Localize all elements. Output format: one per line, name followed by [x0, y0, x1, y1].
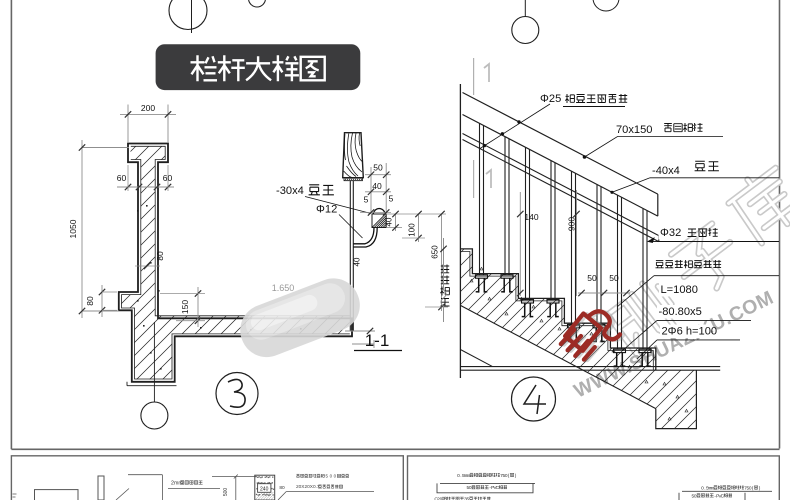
svg-text:-40x4: -40x4: [652, 165, 680, 177]
svg-text:m: m: [466, 474, 470, 479]
svg-text:0: 0: [469, 485, 472, 491]
svg-text:40: 40: [353, 257, 362, 266]
svg-text:40: 40: [372, 181, 382, 191]
svg-text:-80.80x5: -80.80x5: [659, 306, 702, 318]
svg-text:240: 240: [260, 487, 269, 493]
svg-text:50: 50: [373, 163, 383, 173]
svg-text:20X20X0.7: 20X20X0.7: [296, 484, 320, 490]
svg-text:5: 5: [466, 497, 469, 500]
svg-text:L=1080: L=1080: [661, 284, 698, 296]
svg-text:70x150: 70x150: [616, 124, 653, 136]
svg-text:140: 140: [524, 212, 538, 222]
svg-text:80: 80: [279, 485, 285, 491]
svg-text:50: 50: [587, 273, 597, 283]
svg-text:1050: 1050: [68, 219, 78, 238]
svg-text:2Φ6 h=100: 2Φ6 h=100: [662, 326, 718, 338]
svg-text:500: 500: [223, 488, 229, 497]
svg-text:1.650: 1.650: [272, 283, 295, 293]
svg-text:100: 100: [408, 223, 417, 237]
svg-text:900: 900: [567, 217, 577, 231]
svg-text:-30x4: -30x4: [276, 185, 304, 197]
svg-text:650: 650: [431, 245, 440, 259]
svg-text:60: 60: [163, 173, 173, 183]
svg-text:200: 200: [141, 103, 155, 113]
svg-text:0: 0: [694, 493, 697, 499]
svg-text:150: 150: [180, 300, 190, 314]
svg-text:Φ25: Φ25: [540, 93, 561, 105]
svg-text:80: 80: [155, 251, 165, 261]
svg-text:5: 5: [389, 194, 394, 204]
svg-text:m: m: [710, 486, 714, 491]
svg-text:0: 0: [440, 497, 443, 500]
svg-text:40: 40: [385, 217, 394, 226]
svg-text:80: 80: [85, 296, 95, 306]
svg-text:60: 60: [117, 173, 127, 183]
svg-text:Φ32: Φ32: [660, 227, 681, 239]
svg-text:1-1: 1-1: [365, 331, 390, 350]
svg-text:50: 50: [609, 273, 619, 283]
svg-text:Φ12: Φ12: [316, 204, 337, 216]
svg-text:5: 5: [364, 195, 369, 205]
